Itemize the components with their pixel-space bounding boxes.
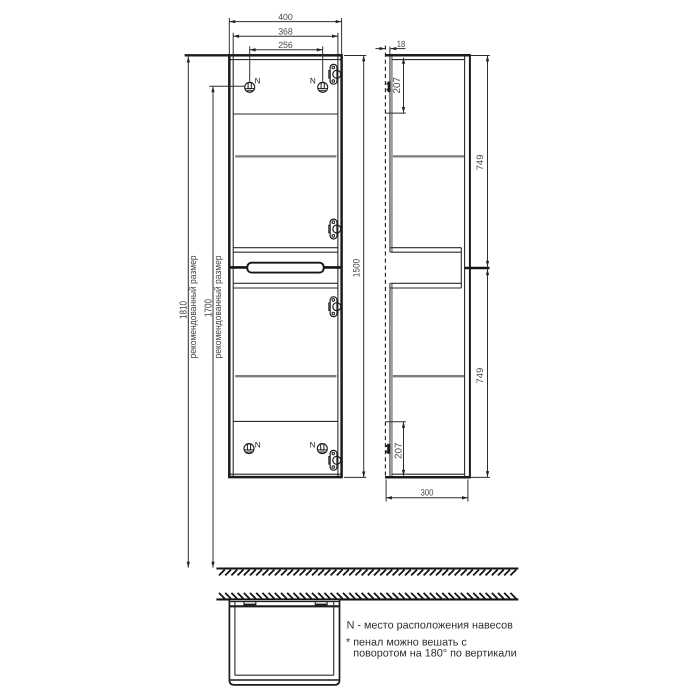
svg-text:256: 256: [278, 40, 293, 50]
svg-text:207: 207: [394, 443, 405, 460]
svg-text:207: 207: [392, 77, 403, 94]
svg-text:749: 749: [474, 368, 485, 384]
svg-text:N - место расположения навесов: N - место расположения навесов: [347, 620, 514, 632]
svg-text:18: 18: [397, 39, 406, 49]
svg-text:1500: 1500: [350, 259, 361, 278]
svg-text:749: 749: [474, 154, 485, 170]
svg-text:N: N: [255, 76, 261, 85]
svg-text:поворотом на 180° по вертикал: поворотом на 180° по вертикали: [353, 648, 516, 660]
svg-text:300: 300: [421, 488, 434, 498]
svg-text:рекомендованный размер: рекомендованный размер: [213, 256, 224, 359]
svg-text:N: N: [310, 76, 316, 85]
svg-text:рекомендованный размер: рекомендованный размер: [188, 256, 199, 359]
svg-text:400: 400: [278, 12, 293, 22]
svg-text:N: N: [310, 440, 316, 449]
svg-text:N: N: [255, 440, 261, 449]
svg-text:368: 368: [278, 26, 293, 36]
